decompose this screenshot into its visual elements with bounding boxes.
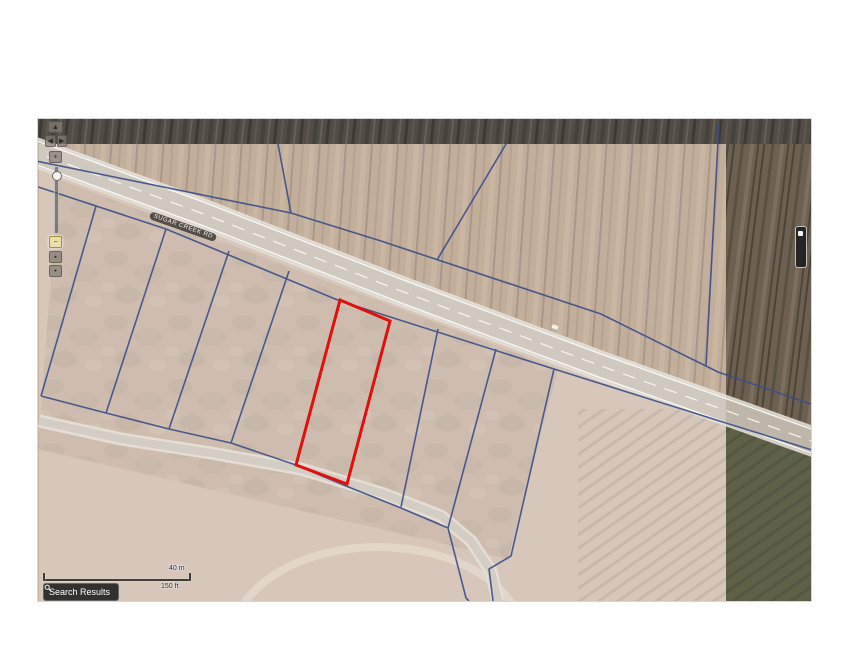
zoom-in-button[interactable]: +	[49, 151, 62, 163]
panel-handle-icon	[798, 231, 803, 236]
tool-button-a[interactable]: ▪	[49, 251, 62, 263]
pan-up-icon: ▲	[52, 124, 59, 131]
side-panel-handle[interactable]	[795, 226, 807, 268]
scale-tick-left	[43, 573, 45, 581]
search-results-label: Search Results	[49, 587, 110, 597]
search-icon	[44, 584, 52, 592]
scale-bar-line	[43, 579, 191, 581]
pan-left-icon: ◀	[48, 138, 53, 145]
extent-overlay	[39, 144, 726, 601]
scale-metric-label: 40 m	[169, 565, 185, 572]
tool-b-icon: •	[54, 268, 56, 275]
tree-band	[38, 119, 811, 144]
scale-imperial-label: 150 ft	[161, 583, 179, 590]
zoom-slider[interactable]	[54, 166, 59, 234]
zoom-slider-thumb[interactable]	[52, 171, 62, 181]
zoom-in-icon: +	[53, 154, 57, 161]
pan-up-button[interactable]: ▲	[48, 121, 63, 133]
zoom-out-button[interactable]: −	[49, 236, 62, 248]
app-window: SUGAR CREEK RD ▲ ◀ ▶ + − ▪ • 40 m 150 ft	[0, 0, 852, 658]
tool-a-icon: ▪	[54, 254, 56, 261]
map-canvas[interactable]: SUGAR CREEK RD ▲ ◀ ▶ + − ▪ • 40 m 150 ft	[37, 118, 812, 602]
aerial-imagery	[38, 119, 811, 601]
woods	[726, 144, 811, 431]
zoom-out-icon: −	[53, 239, 57, 246]
pan-right-button[interactable]: ▶	[57, 135, 68, 147]
pan-right-icon: ▶	[59, 138, 64, 145]
pan-left-button[interactable]: ◀	[45, 135, 56, 147]
tool-button-b[interactable]: •	[49, 265, 62, 277]
search-results-button[interactable]: Search Results	[43, 583, 119, 601]
scale-tick-right	[189, 573, 191, 581]
